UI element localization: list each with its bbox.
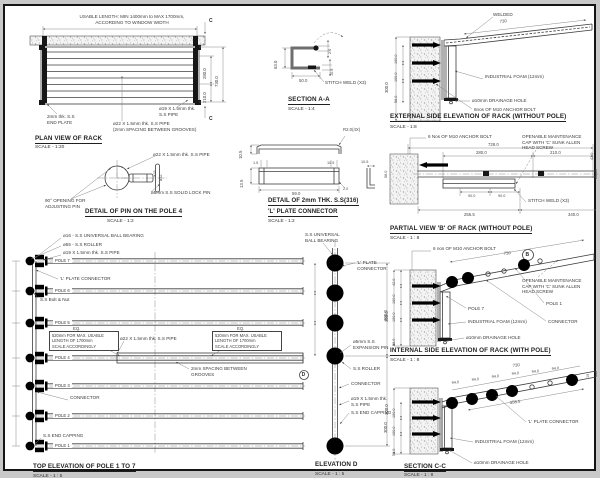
- plan-view-of-rack: USABLE LENGTH: MIN 1400mm to MAX 1700mm,…: [27, 14, 247, 154]
- external-elevation-title: EXTERNAL SIDE ELEVATION OF RACK (WITHOUT…: [390, 113, 566, 122]
- drainage-label: ø10mm DRAINAGE HOLE: [472, 98, 527, 104]
- pin-detail-view: ø22 X 1.5mm thk. S.S PIPE ø5mm S.S SOLID…: [45, 152, 245, 232]
- dim-58: 58.0: [392, 449, 396, 456]
- pole-4-label: POLE 4: [53, 355, 72, 360]
- pipe19-label: ø19 X 1.5mm thk. S.S PIPE: [351, 396, 387, 407]
- section-aa-view: 63.0 50.0 2.0 10.5 STITCH WELD (X3) SECT…: [248, 22, 376, 124]
- foam-label: INDUSTRIAL FOAM (12mm): [475, 439, 534, 445]
- plan-view-title: PLAN VIEW OF RACK: [35, 135, 102, 144]
- pipe19-label: ø19 X 1.5mm thk. S.S PIPE: [159, 106, 195, 117]
- section-cc-view: 730 94.0 94.0 94.0 94.0 94.0 94.0 358.5 …: [388, 362, 600, 478]
- internal-elevation-view: 6 nos OF M10 ANCHOR BOLT B 730 OPENABLE …: [388, 246, 600, 361]
- section-c-marker-top: C: [209, 18, 213, 24]
- pole-6-label: POLE 6: [53, 288, 72, 293]
- pin-detail-linework: [45, 152, 245, 232]
- dim-210: 210.0: [202, 92, 207, 103]
- ball-bearing-label: S.S UNIVERSAL BALL BEARING: [305, 232, 340, 243]
- dim-100-a: 100.0: [392, 294, 396, 304]
- anchor-bolt-label: 6 nos OF M10 ANCHOR BOLT: [433, 246, 496, 252]
- pole-7-label: POLE 7: [468, 306, 484, 312]
- dim-105: 10.5: [330, 69, 334, 76]
- spacing-label: 2mm SPACING BETWEEN GROOVES: [191, 366, 247, 377]
- top-elevation-title: TOP ELEVATION OF POLE 1 TO 7: [33, 463, 136, 472]
- maintenance-cap-label: OPENABLE MAINTENANCE CAP WITH 'C' SUNK A…: [522, 134, 581, 151]
- foam-label: INDUSTRIAL FOAM (12mm): [485, 74, 544, 80]
- lock-pin-label: ø5mm S.S SOLID LOCK PIN: [151, 190, 210, 196]
- dim-100-a: 100.0: [392, 408, 396, 418]
- dim-42: 42.0: [392, 279, 396, 286]
- end-capping-label: S.S END CAPPING: [43, 433, 83, 439]
- dim-100-b: 100.0: [392, 312, 396, 322]
- dim-100-a: 100.0: [394, 54, 398, 64]
- dim-340: 340.0: [568, 212, 579, 217]
- pole-2-label: POLE 2: [53, 413, 72, 418]
- view-d-marker: D: [302, 372, 306, 378]
- section-cc-title: SECTION C-C: [404, 463, 446, 472]
- window-width-note: ACCORDING TO WINDOW WIDTH: [57, 20, 207, 26]
- dim-135: 13.5: [239, 180, 244, 188]
- connector-label: CONNECTOR: [70, 395, 100, 401]
- plan-view-scale: SCALE - 1:20: [35, 145, 64, 150]
- l-plate-title-1: DETAIL OF 2mm THK. S.S(316): [268, 198, 359, 206]
- foam-label: INDUSTRIAL FOAM (12mm): [468, 319, 527, 325]
- dim-90-b: 90.0: [498, 194, 505, 198]
- elevation-d-title: ELEVATION D: [315, 461, 358, 470]
- dim-42: 42.0: [590, 153, 594, 160]
- partial-view-b-title: PARTIAL VIEW 'B' OF RACK (WITHOUT POLE): [390, 225, 532, 234]
- pipe19-label: ø19 X 1.5mm thk. S.S PIPE: [63, 250, 120, 256]
- dim-105-mid: 10.5: [327, 161, 334, 165]
- welded-label: WELDED: [493, 12, 513, 18]
- l-plate-title-2: 'L' PLATE CONNECTOR: [268, 209, 338, 217]
- end-plate-label: 2mm thk. S.S END PLATE: [47, 114, 75, 125]
- dim-2: 2.0: [343, 187, 348, 191]
- external-elevation-view: WELDED 730 INDUSTRIAL FOAM (12mm) ø10mm …: [388, 10, 600, 144]
- dim-300: 300.0: [383, 422, 388, 433]
- dim-58: 58.0: [394, 96, 398, 103]
- maintenance-cap-label: OPENABLE MAINTENANCE CAP WITH 'C' SUNK A…: [522, 278, 581, 295]
- drainage-label: ø10mm DRAINAGE HOLE: [474, 460, 529, 466]
- dim-100-b: 100.0: [394, 72, 398, 82]
- pole-1-label: POLE 1: [53, 443, 72, 448]
- pin-detail-scale: SCALE - 1:2: [107, 219, 134, 224]
- opening-label: 90° OPENING FOR ADJUSTING PIN: [45, 198, 85, 209]
- dim-15: 1.5: [253, 161, 258, 165]
- dim-105-top: 10.5: [238, 151, 243, 159]
- stitch-weld-label: STITCH WELD (X3): [528, 198, 569, 204]
- pole-3-label: POLE 3: [53, 383, 72, 388]
- dim-2555: 255.5: [464, 212, 475, 217]
- dim-210: 210.0: [550, 150, 561, 155]
- section-cc-scale: SCALE - 1 : 8: [404, 473, 433, 478]
- dim-r2: R2.0(4X): [343, 127, 360, 132]
- partial-view-b: 6 Nos OF M10 ANCHOR BOLT OPENABLE MAINTE…: [388, 134, 600, 246]
- roller-label: S.S ROLLER: [353, 366, 380, 372]
- l-plate-connector-label: 'L' PLATE CONNECTOR: [60, 276, 111, 282]
- dim-280: 280.0: [476, 150, 487, 155]
- dim-63: 63.0: [273, 61, 278, 69]
- dim-o22: ø22: [159, 174, 163, 181]
- dim-90-a: 90.0: [468, 194, 475, 198]
- expansion-pin-label: ø5mm S.S EXPANSION PIN: [353, 339, 388, 350]
- elevation-d-scale: SCALE - 1 : 5: [315, 472, 344, 477]
- external-elevation-scale: SCALE - 1:8: [390, 125, 417, 130]
- dim-730: 730.0: [214, 76, 219, 87]
- pin-detail-title: DETAIL OF PIN ON THE POLE 4: [85, 208, 182, 217]
- l-plate-scale: SCALE - 1:2: [268, 219, 295, 224]
- pole-7-label: POLE 7: [53, 258, 72, 263]
- dim-300: 300.0: [383, 310, 388, 321]
- l-plate-detail-view: 10.5 R2.0(4X) 1.5 10.5 13.5 59.0 2.0 10.…: [243, 126, 385, 230]
- usable-length-note: USABLE LENGTH: MIN 1400mm to MAX 1700mm,: [57, 14, 207, 20]
- dim-50: 50.0: [299, 78, 307, 83]
- dim-58: 58.0: [384, 171, 388, 178]
- connector-label: CONNECTOR: [548, 319, 578, 325]
- dim-730: 730: [512, 362, 520, 368]
- internal-elevation-linework: [388, 246, 600, 361]
- dim-59: 59.0: [292, 191, 300, 196]
- pipe22-label: ø22 X 1.5mm thk. S.S PIPE: [153, 152, 210, 158]
- pole-1-label: POLE 1: [546, 301, 562, 307]
- dim-58: 58.0: [392, 339, 396, 346]
- drawing-sheet: USABLE LENGTH: MIN 1400mm to MAX 1700mm,…: [3, 4, 596, 471]
- internal-elevation-title: INTERNAL SIDE ELEVATION OF RACK (WITH PO…: [390, 347, 551, 356]
- section-c-marker-bottom: C: [209, 116, 213, 122]
- anchor-bolt-label: 6nos OF M10 ANCHOR BOLT: [474, 107, 536, 113]
- dim-280: 280.0: [202, 68, 207, 79]
- dim-105-right: 10.5: [361, 160, 368, 164]
- dim-100-b: 100.0: [392, 426, 396, 436]
- stitch-weld-label: STITCH WELD (X3): [325, 80, 366, 86]
- ball-bearing-label: ø16 - S.S UNIVERSAL BALL BEARING: [63, 233, 144, 239]
- pipe22-label: ø22 X 1.5mm thk. S.S PIPE: [120, 336, 177, 342]
- dim-19: 19: [586, 374, 590, 378]
- bolt-nut-label: S.S Bolt & Nut: [40, 297, 69, 303]
- dim-300: 300.0: [384, 82, 389, 93]
- pole-5-label: POLE 5: [53, 320, 72, 325]
- dim-730: 730: [499, 18, 507, 24]
- top-elevation-view: ø16 - S.S UNIVERSAL BALL BEARING ø55 - S…: [9, 232, 309, 478]
- section-aa-scale: SCALE - 1:4: [288, 107, 315, 112]
- dim-o19: ø19: [153, 170, 157, 177]
- section-aa-title: SECTION A-A: [288, 96, 330, 105]
- drainage-label: ø10mm DRAINAGE HOLE: [466, 335, 521, 341]
- pipe22-label: ø22 X 1.5mm thk. S.S PIPE (2mm SPACING B…: [113, 121, 196, 132]
- anchor-bolt-label: 6 Nos OF M10 ANCHOR BOLT: [428, 134, 492, 140]
- roller-label: ø55 - S.S ROLLER: [63, 242, 102, 248]
- usable-length-box-left: 520mm FOR MAX. USABLE LENGTH OF 1700mm S…: [49, 331, 119, 351]
- view-b-marker: B: [526, 252, 530, 258]
- dim-730: 730: [503, 250, 511, 256]
- dim-728: 728.0: [488, 142, 499, 147]
- top-elevation-scale: SCALE - 1 : 5: [33, 474, 62, 478]
- connector-label: CONNECTOR: [351, 381, 381, 387]
- usable-length-box-right: 520mm FOR MAX. USABLE LENGTH OF 1700mm S…: [212, 331, 282, 351]
- l-plate-connector-label: 'L' PLATE CONNECTOR: [528, 419, 579, 425]
- dim-2: 2.0: [328, 49, 332, 54]
- partial-view-b-scale: SCALE - 1 : 8: [390, 236, 419, 241]
